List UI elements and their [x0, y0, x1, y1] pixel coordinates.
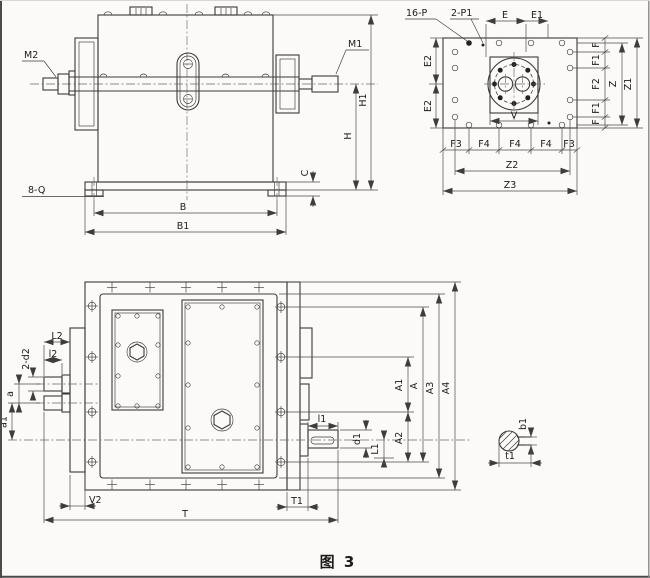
dim-label-v: V: [511, 111, 518, 122]
plan-view-dimensions: L2 l2 2-d2 a a1 V2 T: [0, 282, 461, 523]
dim-label-key-b1: b1: [518, 418, 529, 430]
cross-shaft: [30, 74, 378, 91]
output-side: [287, 282, 338, 490]
dim-label-b1: B1: [177, 221, 190, 232]
dim-label-f4-3: F4: [540, 139, 552, 150]
dim-label-m1: M1: [348, 39, 362, 50]
dim-label-z1: Z1: [623, 78, 634, 91]
dim-label-8q: 8-Q: [28, 185, 45, 196]
dim-label-v2: V2: [89, 495, 102, 506]
dim-label-m2: M2: [24, 50, 38, 61]
oil-sight-glass: [177, 53, 199, 110]
gearbox-dimension-drawing: M2 M1 H1 H C 8-Q B B1: [0, 0, 650, 578]
dim-label-f1-top: F1: [591, 54, 602, 66]
dim-label-A: A: [409, 382, 420, 389]
dim-label-z: Z: [608, 80, 619, 87]
flange-view-dimensions: 16-P 2-P1 E E1 E2 E2 F F1 F2: [405, 8, 643, 195]
dim-label-L2: L2: [51, 331, 62, 342]
hex-plug: [130, 344, 144, 360]
dim-label-2p1: 2-P1: [451, 8, 472, 19]
dim-label-f4-1: F4: [478, 139, 490, 150]
dim-label-l2: l2: [49, 349, 58, 360]
small-inspection-cover: [112, 310, 163, 410]
dim-label-f-bottom: F: [591, 119, 602, 124]
dim-label-a: a: [5, 391, 16, 397]
dim-label-L1: L1: [370, 443, 381, 454]
large-inspection-cover: [182, 300, 263, 473]
dim-label-A1: A1: [394, 379, 405, 392]
dim-label-b: B: [180, 202, 187, 213]
keyway-slot: [311, 437, 334, 444]
dim-label-l1: l1: [318, 414, 327, 425]
dim-label-c: C: [300, 169, 311, 176]
dim-label-A2: A2: [394, 432, 405, 445]
dim-label-e2-upper: E2: [423, 55, 434, 67]
dim-label-e2-lower: E2: [423, 100, 434, 112]
dim-label-f3-right: F3: [563, 139, 575, 150]
figure-caption: 图 3: [320, 553, 357, 571]
flange-view: 16-P 2-P1 E E1 E2 E2 F F1 F2: [405, 8, 643, 195]
dim-label-z3: Z3: [504, 180, 517, 191]
dim-label-z2: Z2: [506, 160, 519, 171]
side-view: M2 M1 H1 H C 8-Q B B1: [22, 4, 378, 235]
dim-label-A4: A4: [441, 382, 452, 395]
dim-label-e: E: [502, 10, 508, 21]
dim-label-16p: 16-P: [406, 8, 428, 19]
dim-label-2d2: 2-d2: [21, 348, 32, 370]
dim-label-A3: A3: [425, 382, 436, 395]
dim-label-f4-2: F4: [509, 139, 521, 150]
dim-label-h: H: [343, 132, 354, 139]
hex-plug: [214, 411, 230, 429]
dim-label-f3-left: F3: [450, 139, 462, 150]
base-feet: [85, 177, 286, 200]
dim-label-t: T: [181, 509, 188, 520]
dim-label-d1: d1: [352, 433, 363, 445]
dim-label-f2: F2: [591, 78, 602, 90]
dim-label-key-t1: t1: [505, 451, 515, 462]
housing-bolt-marks: [86, 283, 287, 490]
key-section-detail: b1 t1: [488, 418, 542, 467]
plan-view: L2 l2 2-d2 a a1 V2 T: [0, 282, 470, 523]
input-side: [36, 328, 100, 472]
dim-label-h1: H1: [358, 93, 369, 106]
technical-drawing-page: M2 M1 H1 H C 8-Q B B1: [0, 0, 650, 578]
dim-label-f1-bottom: F1: [591, 102, 602, 114]
dim-label-e1: E1: [531, 10, 543, 21]
dim-label-t1: T1: [290, 496, 303, 507]
